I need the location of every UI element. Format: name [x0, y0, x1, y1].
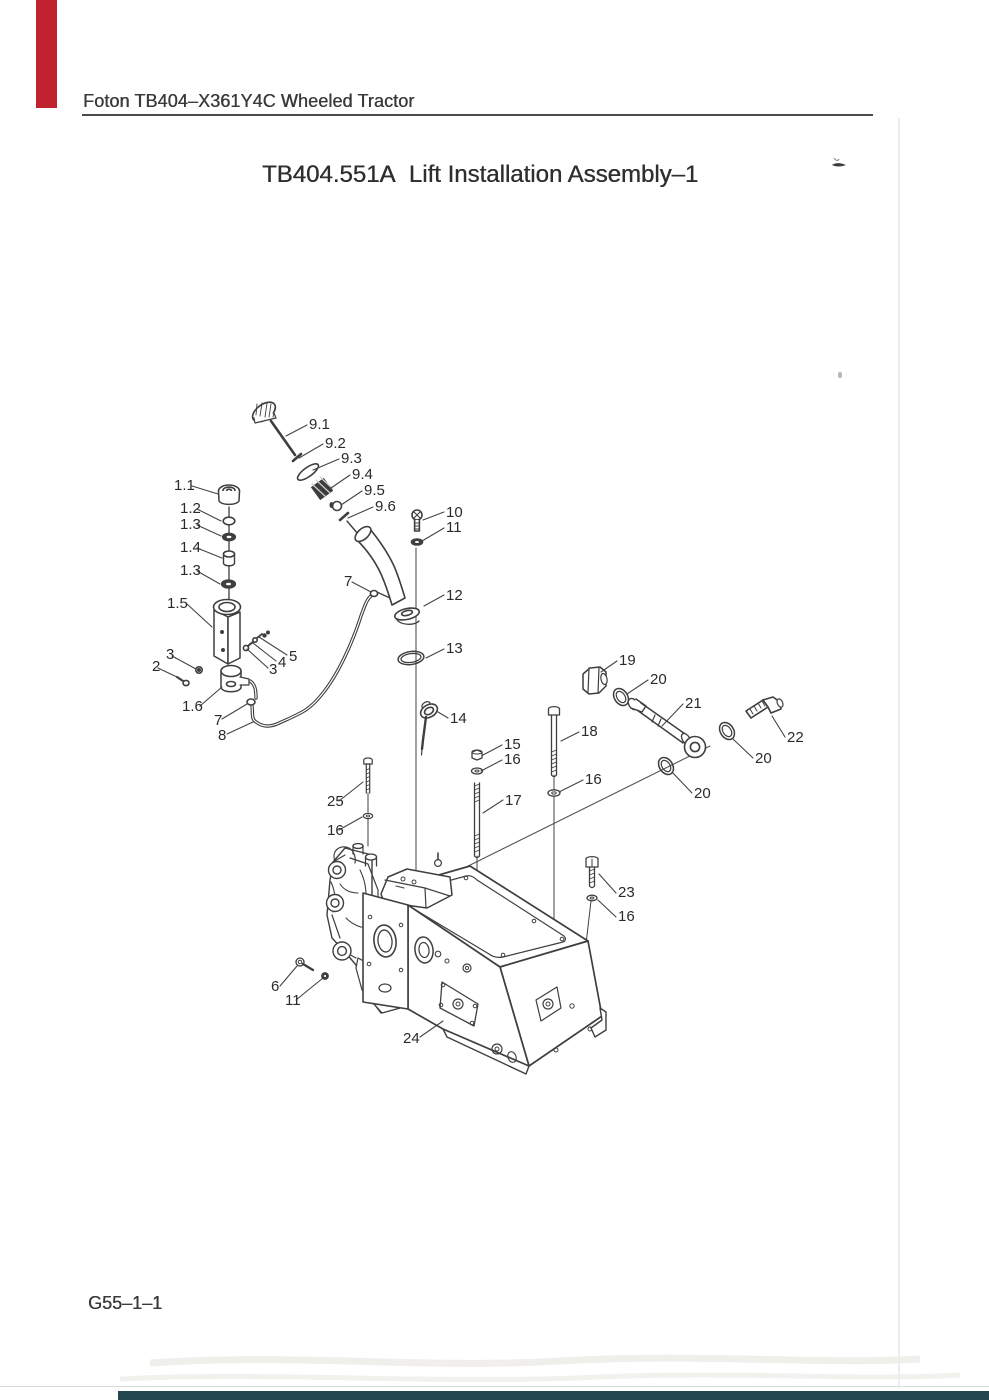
svg-text:11: 11	[446, 519, 462, 536]
svg-text:1.4: 1.4	[180, 539, 201, 556]
svg-text:9.5: 9.5	[364, 482, 385, 499]
svg-text:9.3: 9.3	[341, 450, 362, 467]
svg-text:16: 16	[327, 822, 344, 839]
svg-text:4: 4	[278, 654, 286, 671]
svg-text:3: 3	[269, 661, 277, 678]
svg-text:1.6: 1.6	[182, 698, 203, 715]
svg-text:1.3: 1.3	[180, 516, 201, 533]
svg-text:8: 8	[218, 727, 226, 744]
svg-text:13: 13	[446, 640, 463, 657]
svg-text:9.1: 9.1	[309, 416, 330, 433]
svg-text:16: 16	[504, 751, 521, 768]
svg-text:6: 6	[271, 978, 279, 995]
svg-text:1.3: 1.3	[180, 562, 201, 579]
svg-text:20: 20	[650, 671, 667, 688]
svg-text:20: 20	[755, 750, 772, 767]
svg-text:20: 20	[694, 785, 711, 802]
svg-text:17: 17	[505, 792, 522, 809]
svg-text:23: 23	[618, 884, 635, 901]
svg-text:2: 2	[152, 658, 160, 675]
svg-text:16: 16	[585, 771, 602, 788]
svg-text:21: 21	[685, 695, 702, 712]
svg-text:9.4: 9.4	[352, 466, 373, 483]
svg-text:1.1: 1.1	[174, 477, 195, 494]
svg-text:16: 16	[618, 908, 635, 925]
svg-text:11: 11	[285, 992, 301, 1009]
svg-text:14: 14	[450, 710, 467, 727]
svg-text:3: 3	[166, 646, 174, 663]
svg-text:22: 22	[787, 729, 804, 746]
svg-text:12: 12	[446, 587, 463, 604]
svg-text:9.6: 9.6	[375, 498, 396, 515]
svg-text:1.2: 1.2	[180, 500, 201, 517]
svg-text:19: 19	[619, 652, 636, 669]
svg-text:18: 18	[581, 723, 598, 740]
svg-text:25: 25	[327, 793, 344, 810]
svg-text:5: 5	[289, 648, 297, 665]
svg-text:7: 7	[344, 573, 352, 590]
svg-text:1.5: 1.5	[167, 595, 188, 612]
svg-text:24: 24	[403, 1030, 420, 1047]
